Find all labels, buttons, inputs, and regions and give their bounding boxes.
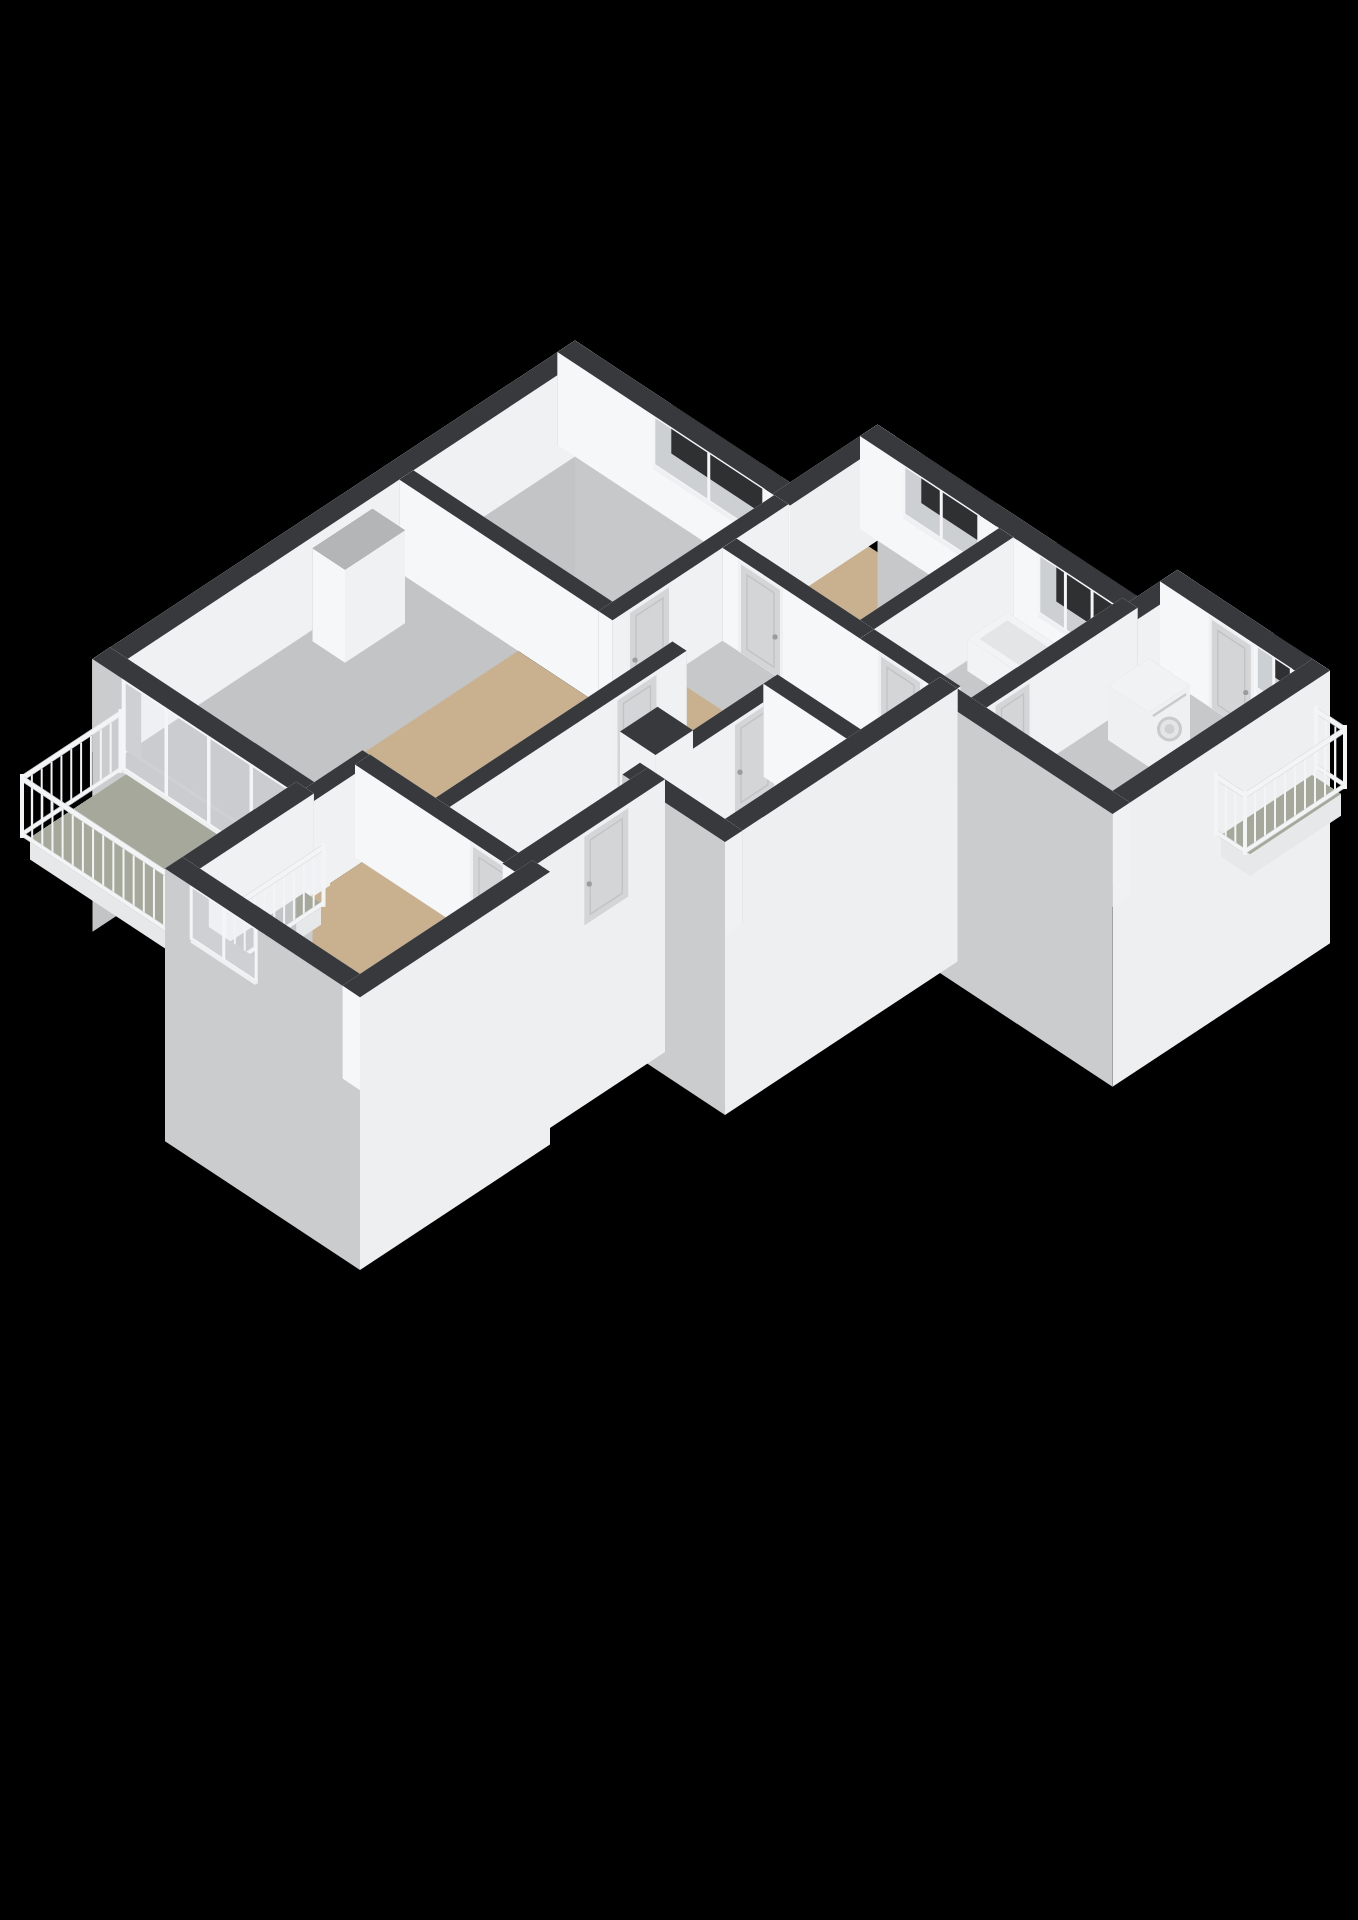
door-handle: [737, 770, 742, 775]
floorplan-canvas: [0, 0, 1358, 1920]
door-handle: [632, 657, 637, 662]
wall-utility-sw-face-se: [1113, 803, 1131, 908]
door-handle: [587, 881, 592, 886]
washing-machine-door-glass: [1165, 724, 1175, 734]
wall-entry-top-sw-face-se: [725, 831, 743, 936]
wall-bedroom-bottom-se-face-sw: [343, 986, 361, 1091]
door-handle: [772, 634, 777, 639]
door-handle: [1243, 690, 1248, 695]
floorplan-3d-render: [0, 0, 1358, 1920]
